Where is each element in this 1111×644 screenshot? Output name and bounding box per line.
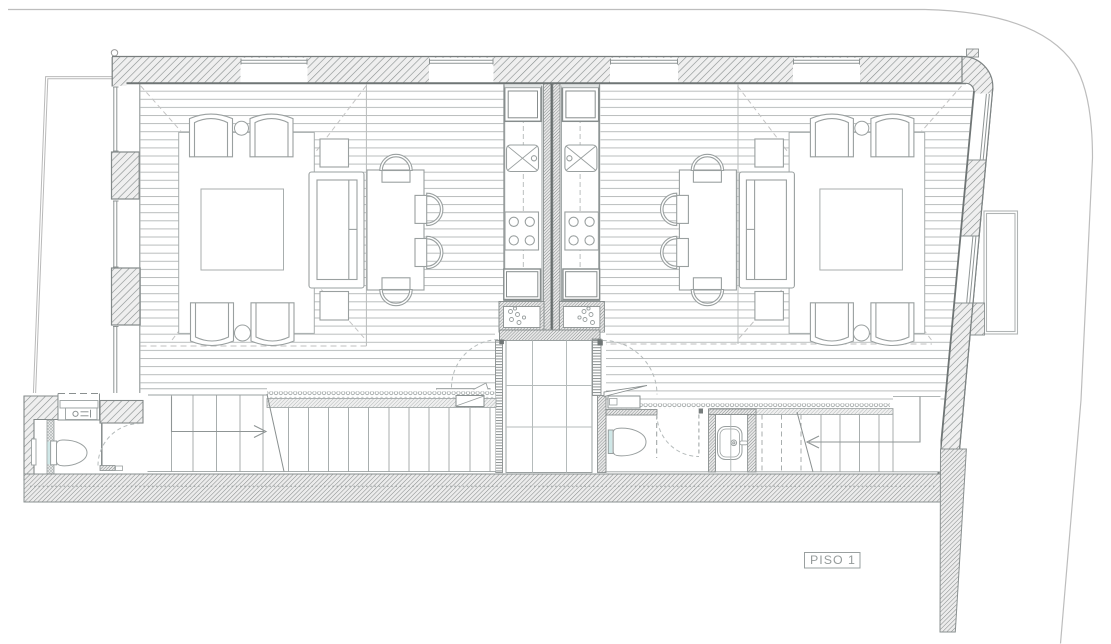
svg-text:PISO 1: PISO 1 bbox=[810, 553, 856, 567]
